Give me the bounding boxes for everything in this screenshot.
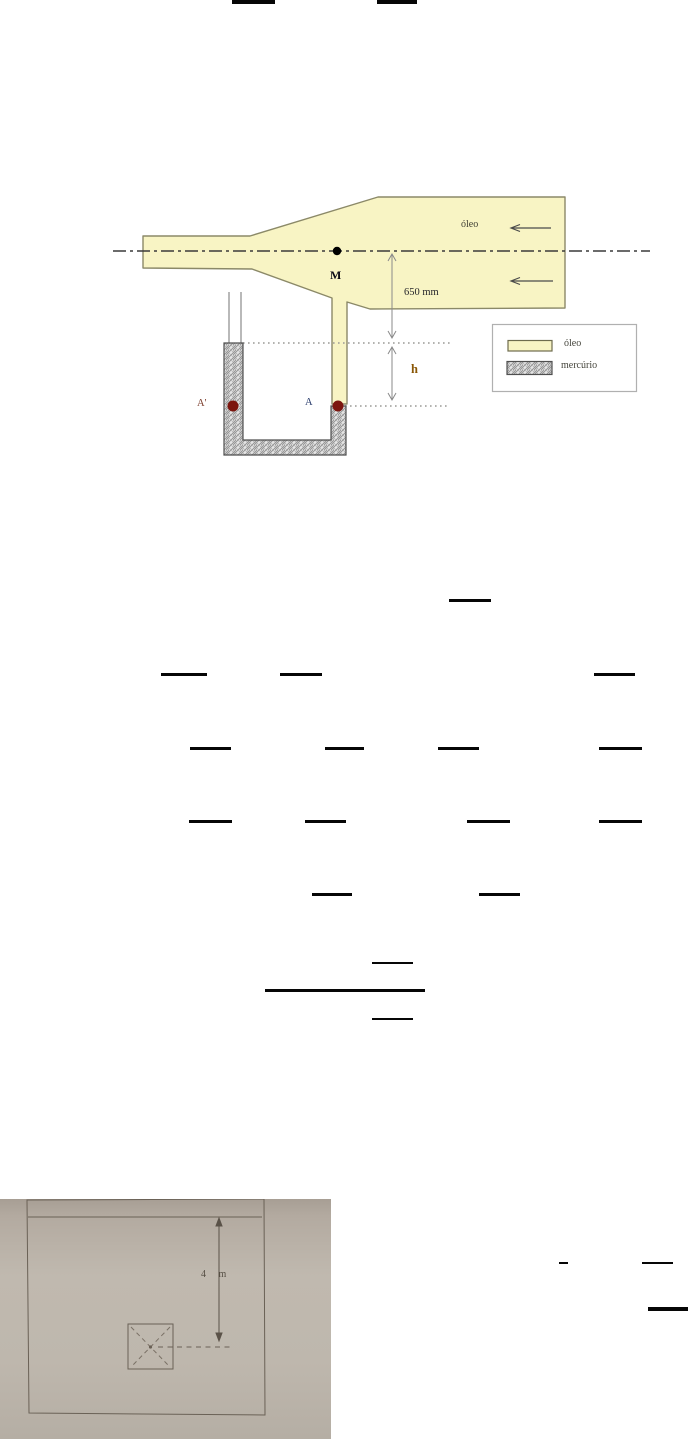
formula-bar	[594, 673, 635, 676]
formula-bar	[599, 747, 642, 750]
formula-bar	[372, 962, 413, 964]
legend-box	[493, 325, 637, 392]
point-a-prime-dot	[228, 401, 239, 412]
open-tube	[229, 292, 241, 343]
point-a-prime-label: A'	[197, 399, 206, 410]
formula-bar	[648, 1307, 688, 1311]
formula-bar	[642, 1262, 673, 1264]
formula-bar	[377, 0, 417, 4]
document-page: óleo 650 mm M h A' A óleo mercúrio	[0, 0, 690, 1439]
formula-bar	[372, 1018, 413, 1020]
gate-center-dot	[149, 1345, 152, 1348]
outer-square	[27, 1199, 265, 1415]
point-m-label: M	[330, 269, 341, 281]
point-m-dot	[333, 247, 341, 255]
dimension-650mm-label: 650 mm	[404, 288, 439, 299]
legend-oil-label: óleo	[564, 339, 581, 349]
formula-bar	[599, 820, 642, 823]
formula-bar	[325, 747, 364, 750]
formula-bar	[280, 673, 322, 676]
formula-bar	[232, 0, 275, 4]
depth-dimension-label: 4 m	[201, 1270, 231, 1280]
legend-mercury-label: mercúrio	[561, 361, 597, 371]
formula-bar	[190, 747, 231, 750]
formula-bar	[312, 893, 352, 896]
gate-sketch	[0, 1199, 331, 1439]
legend-oil-swatch	[508, 341, 552, 352]
formula-bar	[305, 820, 346, 823]
formula-bar	[449, 599, 491, 602]
formula-bar	[265, 989, 425, 992]
gate-photo-figure	[0, 1199, 331, 1439]
mercury-utube	[224, 343, 346, 455]
point-a-dot	[333, 401, 344, 412]
formula-bar	[189, 820, 232, 823]
legend-mercury-swatch	[507, 362, 552, 375]
formula-bar	[161, 673, 207, 676]
formula-bar	[438, 747, 479, 750]
point-a-label: A	[305, 398, 313, 409]
formula-bar	[559, 1262, 568, 1264]
oil-flow-label: óleo	[461, 220, 478, 230]
formula-bar	[479, 893, 520, 896]
formula-bar	[467, 820, 510, 823]
pipe-manometer-figure	[0, 190, 690, 460]
dimension-h-label: h	[411, 363, 418, 376]
